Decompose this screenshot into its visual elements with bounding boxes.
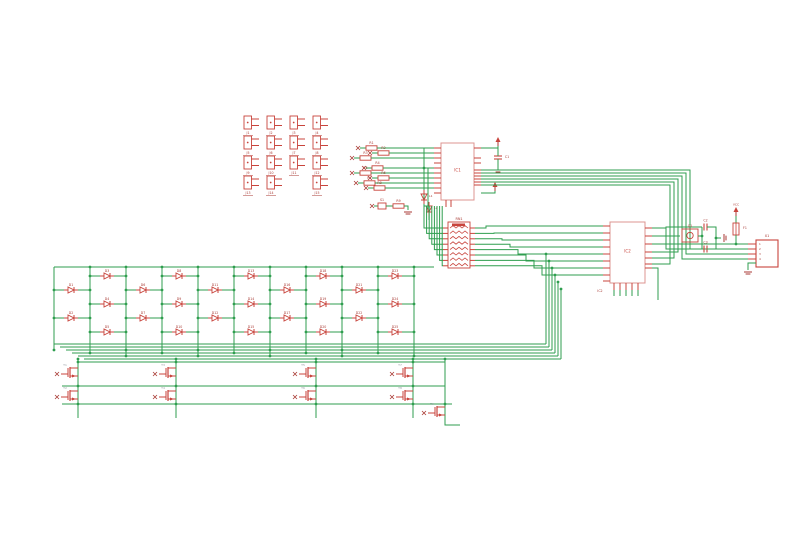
vcc-arrow — [734, 207, 739, 212]
svg-text:D13: D13 — [248, 269, 255, 273]
gnd-symbol — [724, 234, 726, 242]
svg-text:D16: D16 — [284, 283, 291, 287]
diode: D14 — [244, 297, 258, 307]
svg-text:J15: J15 — [314, 191, 320, 195]
junction-dot — [305, 289, 308, 292]
mosfet: T8 — [390, 386, 413, 401]
svg-text:T5: T5 — [300, 363, 305, 367]
junction-dot — [413, 331, 416, 334]
junction-dot — [233, 266, 236, 269]
gnd-symbol — [744, 272, 752, 274]
svg-text:J11: J11 — [291, 171, 297, 175]
svg-text:D24: D24 — [392, 297, 399, 301]
diode: D1 — [64, 283, 78, 293]
diode: D19 — [316, 297, 330, 307]
jack-symbol: J6 — [266, 136, 282, 156]
svg-text:J9: J9 — [246, 171, 250, 175]
svg-text:R2: R2 — [381, 146, 385, 150]
svg-text:D20: D20 — [320, 325, 327, 329]
svg-text:J6: J6 — [269, 151, 273, 155]
svg-text:J10: J10 — [268, 171, 274, 175]
svg-text:D1: D1 — [69, 283, 73, 287]
svg-text:T6: T6 — [300, 386, 305, 390]
svg-text:1: 1 — [759, 242, 761, 246]
capacitor: C3 — [703, 241, 707, 253]
jack-grid: J1J2J3J4J5J6J7J8J9J10J11J12J13J14J15 — [243, 116, 328, 196]
mosfet: T7 — [390, 363, 413, 378]
junction-dot — [233, 275, 236, 278]
svg-text:D23: D23 — [392, 269, 399, 273]
junction-dot — [423, 167, 426, 170]
svg-text:J3: J3 — [292, 131, 296, 135]
svg-text:Q1: Q1 — [688, 224, 693, 228]
jack-symbol: J8 — [312, 136, 328, 156]
jack-symbol: J3 — [289, 116, 305, 136]
svg-text:D6: D6 — [141, 283, 145, 287]
junction-dot — [412, 361, 415, 364]
svg-text:R8: R8 — [377, 181, 381, 185]
jack-symbol: J15 — [312, 176, 328, 196]
svg-text:D2: D2 — [69, 311, 73, 315]
junction-dot — [305, 275, 308, 278]
mosfet-drivers: T1T2T3T4T5T6T7T8T9 — [55, 358, 460, 425]
resistor: R7 — [364, 176, 375, 185]
junction-dot — [161, 317, 164, 320]
jack-symbol: J10 — [266, 156, 282, 176]
junction-dot — [377, 266, 380, 269]
svg-text:IC2: IC2 — [624, 249, 631, 254]
svg-text:J14: J14 — [268, 191, 274, 195]
jack-symbol: J4 — [312, 116, 328, 136]
jack-symbol: J14 — [266, 176, 282, 196]
vcc-arrow — [496, 137, 501, 142]
diode: D23 — [388, 269, 402, 279]
svg-text:J8: J8 — [315, 151, 319, 155]
svg-text:F1: F1 — [743, 226, 747, 230]
junction-dot — [412, 385, 415, 388]
svg-text:T4: T4 — [160, 386, 165, 390]
svg-text:R5: R5 — [363, 166, 367, 170]
junction-dot — [197, 289, 200, 292]
svg-text:T7: T7 — [397, 363, 402, 367]
svg-text:J7: J7 — [292, 151, 296, 155]
junction-dot — [233, 331, 236, 334]
junction-dot — [315, 403, 318, 406]
diode: D11 — [208, 283, 222, 293]
diode: D6 — [136, 283, 150, 293]
junction-dot — [545, 253, 548, 256]
diode: D18 — [316, 269, 330, 279]
junction-dot — [315, 385, 318, 388]
ic1-inputs: R1R2R3R4R5R6R7R8 — [350, 141, 434, 212]
junction-dot — [89, 331, 92, 334]
resistor: R5 — [360, 166, 371, 175]
junction-dot — [77, 361, 80, 364]
svg-text:4: 4 — [759, 257, 761, 261]
mosfet: T2 — [55, 386, 78, 401]
junction-dot — [444, 358, 447, 361]
junction-dot — [197, 275, 200, 278]
svg-text:D12: D12 — [212, 311, 219, 315]
junction-dot — [412, 403, 415, 406]
svg-text:J2: J2 — [269, 131, 273, 135]
junction-dot — [377, 303, 380, 306]
diode: D7 — [136, 311, 150, 321]
junction-dot — [89, 289, 92, 292]
junction-dot — [413, 266, 416, 269]
keyboard-matrix: D1D2D3D4D5D6D7D8D9D10D11D12D13D14D15D16D… — [53, 253, 563, 359]
svg-text:3: 3 — [759, 252, 761, 256]
diode: D17 — [280, 311, 294, 321]
jack-symbol: J13 — [243, 176, 259, 196]
junction-dot — [315, 358, 318, 361]
svg-text:X1: X1 — [765, 234, 769, 238]
junction-dot — [77, 358, 80, 361]
svg-text:T8: T8 — [397, 386, 402, 390]
junction-dot — [175, 385, 178, 388]
jack-symbol: J9 — [243, 156, 259, 176]
jack-symbol: J11 — [289, 156, 305, 176]
junction-dot — [53, 349, 56, 352]
svg-text:J5: J5 — [246, 151, 250, 155]
svg-text:D19: D19 — [320, 297, 327, 301]
right-bundle: IC2 — [481, 170, 748, 300]
svg-text:T9: T9 — [429, 402, 434, 406]
junction-dot — [125, 266, 128, 269]
junction-dot — [269, 266, 272, 269]
svg-text:RN1: RN1 — [455, 217, 462, 221]
junction-dot — [305, 331, 308, 334]
diode: D2 — [64, 311, 78, 321]
mosfet: T1 — [55, 363, 78, 378]
svg-text:J1: J1 — [246, 131, 250, 135]
junction-dot — [269, 275, 272, 278]
junction-dot — [175, 361, 178, 364]
jack-symbol: J5 — [243, 136, 259, 156]
junction-dot — [341, 317, 344, 320]
mosfet: T3 — [153, 363, 176, 378]
diode: D9 — [172, 297, 186, 307]
diode: D8 — [172, 269, 186, 279]
junction-dot — [161, 331, 164, 334]
svg-text:R7: R7 — [367, 176, 371, 180]
junction-dot — [233, 289, 236, 292]
jack-symbol: J7 — [289, 136, 305, 156]
ic1: IC1 — [434, 143, 481, 207]
svg-text:D9: D9 — [177, 297, 181, 301]
diode: D24 — [388, 297, 402, 307]
junction-dot — [269, 289, 272, 292]
svg-text:R1: R1 — [369, 141, 373, 145]
svg-text:2: 2 — [759, 247, 761, 251]
junction-dot — [305, 266, 308, 269]
junction-dot — [557, 281, 560, 284]
junction-dot — [554, 274, 557, 277]
junction-dot — [341, 289, 344, 292]
resistor: R8 — [374, 181, 385, 190]
junction-dot — [161, 303, 164, 306]
junction-dot — [701, 235, 704, 238]
jack-symbol: J1 — [243, 116, 259, 136]
svg-text:D25: D25 — [392, 325, 399, 329]
svg-text:D11: D11 — [212, 283, 219, 287]
svg-text:R4: R4 — [375, 161, 379, 165]
mosfet: T5 — [293, 363, 316, 378]
svg-text:VCC: VCC — [733, 203, 739, 207]
junction-dot — [197, 317, 200, 320]
junction-dot — [233, 303, 236, 306]
svg-text:D17: D17 — [284, 311, 291, 315]
junction-dot — [89, 303, 92, 306]
diode: D12 — [208, 311, 222, 321]
svg-text:J12: J12 — [314, 171, 320, 175]
junction-dot — [341, 275, 344, 278]
svg-text:IC1: IC1 — [454, 168, 461, 173]
junction-dot — [377, 317, 380, 320]
junction-dot — [175, 403, 178, 406]
junction-dot — [377, 275, 380, 278]
junction-dot — [125, 289, 128, 292]
diode: D16 — [280, 283, 294, 293]
junction-dot — [560, 288, 563, 291]
gnd-symbol — [404, 212, 412, 214]
junction-dot — [269, 317, 272, 320]
svg-text:T2: T2 — [62, 386, 67, 390]
junction-dot — [551, 267, 554, 270]
svg-text:R9: R9 — [396, 199, 400, 203]
junction-dot — [161, 266, 164, 269]
usb-section: VCCF1X11234 — [733, 203, 778, 275]
junction-dot — [161, 289, 164, 292]
diode: D15 — [244, 325, 258, 335]
schematic-canvas: J1J2J3J4J5J6J7J8J9J10J11J12J13J14J15IC1I… — [0, 0, 800, 540]
svg-text:L1: L1 — [429, 194, 433, 198]
mosfet: T6 — [293, 386, 316, 401]
resistor: R4 — [372, 161, 383, 170]
diode: D21 — [352, 283, 366, 293]
junction-dot — [412, 358, 415, 361]
svg-text:D22: D22 — [356, 311, 363, 315]
svg-text:D5: D5 — [105, 325, 109, 329]
svg-text:D15: D15 — [248, 325, 255, 329]
junction-dot — [735, 243, 738, 246]
diode: D5 — [100, 325, 114, 335]
svg-text:S1: S1 — [380, 198, 384, 202]
svg-text:R6: R6 — [381, 171, 385, 175]
junction-dot — [77, 385, 80, 388]
jack-symbol: J2 — [266, 116, 282, 136]
junction-dot — [341, 266, 344, 269]
svg-text:J4: J4 — [315, 131, 319, 135]
svg-text:J13: J13 — [245, 191, 251, 195]
svg-text:C1: C1 — [505, 155, 509, 159]
junction-dot — [377, 331, 380, 334]
diode: D22 — [352, 311, 366, 321]
svg-text:D8: D8 — [177, 269, 181, 273]
junction-dot — [89, 317, 92, 320]
resistor: R9 — [393, 199, 404, 208]
junction-dot — [305, 303, 308, 306]
capacitor: C2 — [703, 219, 707, 231]
svg-text:D10: D10 — [176, 325, 183, 329]
junction-dot — [89, 266, 92, 269]
svg-text:IC2: IC2 — [597, 289, 602, 293]
diode: D25 — [388, 325, 402, 335]
junction-dot — [315, 361, 318, 364]
junction-dot — [444, 403, 447, 406]
svg-text:D18: D18 — [320, 269, 327, 273]
diode: D20 — [316, 325, 330, 335]
diode: D13 — [244, 269, 258, 279]
crystal-circuit: Q1C2C3 — [652, 219, 726, 253]
diode: D4 — [100, 297, 114, 307]
svg-text:D4: D4 — [105, 297, 109, 301]
svg-text:D14: D14 — [248, 297, 255, 301]
schematic-page: J1J2J3J4J5J6J7J8J9J10J11J12J13J14J15IC1I… — [0, 0, 800, 540]
svg-text:D7: D7 — [141, 311, 145, 315]
svg-text:D3: D3 — [105, 269, 109, 273]
svg-text:T3: T3 — [160, 363, 165, 367]
junction-dot — [161, 275, 164, 278]
ic2: IC2 — [603, 222, 652, 290]
junction-dot — [377, 289, 380, 292]
junction-dot — [305, 317, 308, 320]
junction-dot — [413, 275, 416, 278]
diode: D10 — [172, 325, 186, 335]
svg-text:R3: R3 — [363, 151, 367, 155]
junction-dot — [125, 275, 128, 278]
resistor-network: RN1 — [424, 206, 603, 275]
svg-text:C2: C2 — [703, 219, 707, 223]
junction-dot — [413, 303, 416, 306]
svg-text:T1: T1 — [62, 363, 67, 367]
mosfet: T4 — [153, 386, 176, 401]
svg-text:C3: C3 — [703, 241, 707, 245]
resistor: R1 — [366, 141, 377, 150]
junction-dot — [548, 260, 551, 263]
junction-dot — [89, 275, 92, 278]
junction-dot — [175, 358, 178, 361]
junction-dot — [715, 237, 718, 240]
svg-text:D21: D21 — [356, 283, 363, 287]
resistor: R2 — [378, 146, 389, 155]
diode: D3 — [100, 269, 114, 279]
junction-dot — [197, 266, 200, 269]
junction-dot — [77, 403, 80, 406]
jack-symbol: J12 — [312, 156, 328, 176]
junction-dot — [233, 317, 236, 320]
junction-dot — [125, 317, 128, 320]
resistor: R6 — [378, 171, 389, 180]
